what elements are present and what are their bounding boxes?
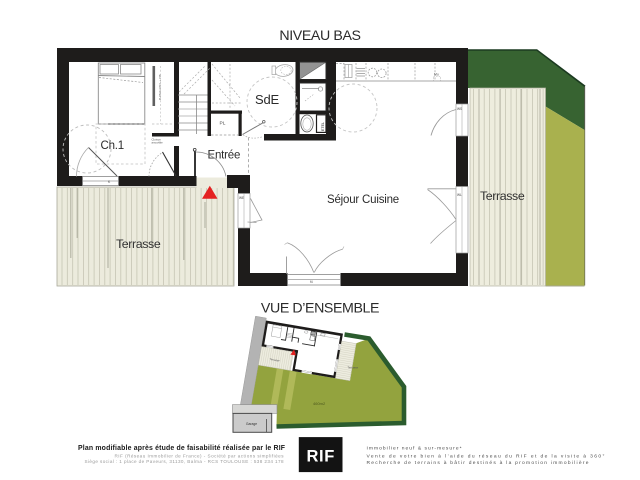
svg-text:Terrasse: Terrasse <box>480 189 525 203</box>
svg-text:f4: f4 <box>310 280 313 284</box>
svg-text:WE: WE <box>239 196 244 200</box>
svg-text:Terrasse: Terrasse <box>116 237 161 251</box>
svg-text:Entrée: Entrée <box>208 150 241 162</box>
svg-text:Plan modifiable après étude de: Plan modifiable après étude de faisabili… <box>78 445 285 452</box>
svg-text:VUE D’ENSEMBLE: VUE D’ENSEMBLE <box>261 301 379 317</box>
svg-text:Garage: Garage <box>246 422 257 426</box>
svg-text:460m2: 460m2 <box>313 401 326 406</box>
svg-text:RIF (Réseau Immobilier de Fran: RIF (Réseau Immobilier de France) - Soci… <box>115 454 285 459</box>
svg-text:PL: PL <box>220 121 226 127</box>
svg-text:P. Plcd 170 L + HS: P. Plcd 170 L + HS <box>158 74 162 100</box>
svg-text:WL: WL <box>457 193 462 197</box>
svg-text:Mu: Mu <box>434 73 439 77</box>
svg-text:Siège social : 1 place de Pave: Siège social : 1 place de Paveurs, 31130… <box>84 459 283 464</box>
svg-text:SdE: SdE <box>255 92 280 107</box>
svg-text:amovible: amovible <box>152 141 164 145</box>
svg-text:RIF: RIF <box>307 447 335 465</box>
svg-text:Recherche de terrains à bâtir: Recherche de terrains à bâtir destinés à… <box>367 460 589 466</box>
svg-text:NIVEAU BAS: NIVEAU BAS <box>279 28 360 44</box>
svg-text:Vente de votre bien à l’aide d: Vente de votre bien à l’aide du réseau d… <box>367 453 605 459</box>
svg-text:WS: WS <box>457 107 462 111</box>
svg-text:Immobilier neuf & sur-mesure*: Immobilier neuf & sur-mesure* <box>367 446 462 452</box>
svg-text:Séjour Cuisine: Séjour Cuisine <box>327 194 399 206</box>
svg-text:Terrasse: Terrasse <box>348 366 359 370</box>
svg-text:Ch.1: Ch.1 <box>101 140 125 152</box>
svg-text:ETEL: ETEL <box>321 122 325 131</box>
